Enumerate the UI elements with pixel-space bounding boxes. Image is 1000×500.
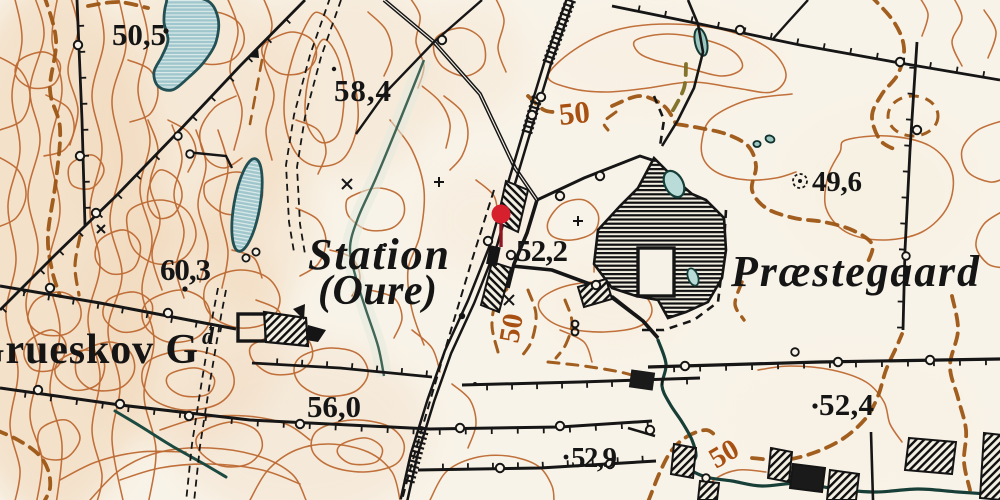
svg-text:Præstegaard: Præstegaard — [730, 247, 980, 296]
svg-text:50: 50 — [557, 94, 591, 132]
svg-text:50: 50 — [493, 311, 530, 345]
svg-text:52,9: 52,9 — [571, 442, 617, 474]
svg-text:58,4: 58,4 — [334, 73, 391, 108]
svg-text:d: d — [202, 324, 215, 350]
svg-text:49,6: 49,6 — [812, 166, 862, 198]
svg-text:60,3: 60,3 — [160, 252, 211, 287]
svg-text:(Oure): (Oure) — [318, 268, 437, 314]
svg-text:56,0: 56,0 — [307, 389, 361, 424]
svg-text:52,4: 52,4 — [819, 387, 874, 422]
svg-text:50,5: 50,5 — [112, 17, 166, 52]
svg-text:Grueskov G: Grueskov G — [0, 327, 198, 373]
svg-text:52,2: 52,2 — [516, 233, 568, 268]
